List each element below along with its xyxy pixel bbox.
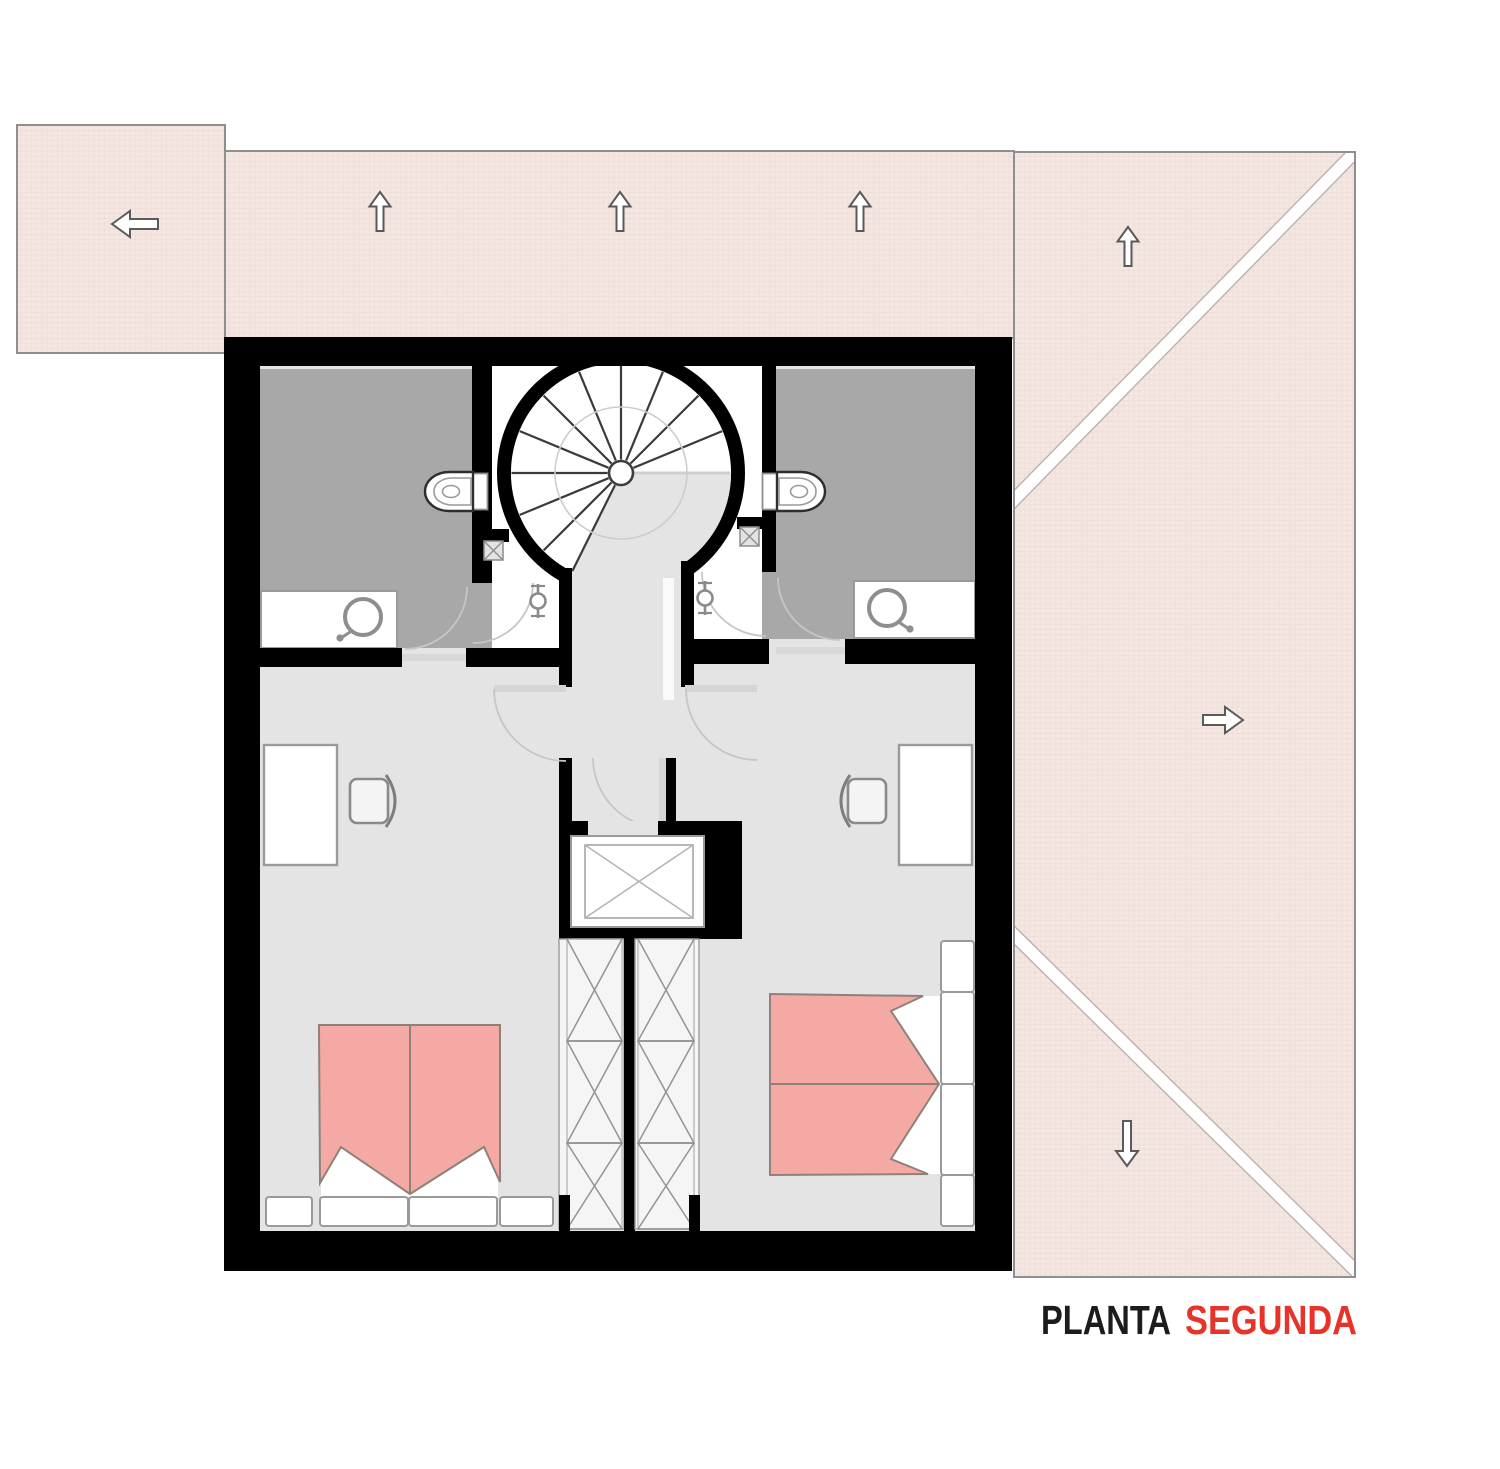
svg-text:PLANTA: PLANTA [1041,1297,1171,1343]
svg-text:SEGUNDA: SEGUNDA [1185,1297,1357,1343]
